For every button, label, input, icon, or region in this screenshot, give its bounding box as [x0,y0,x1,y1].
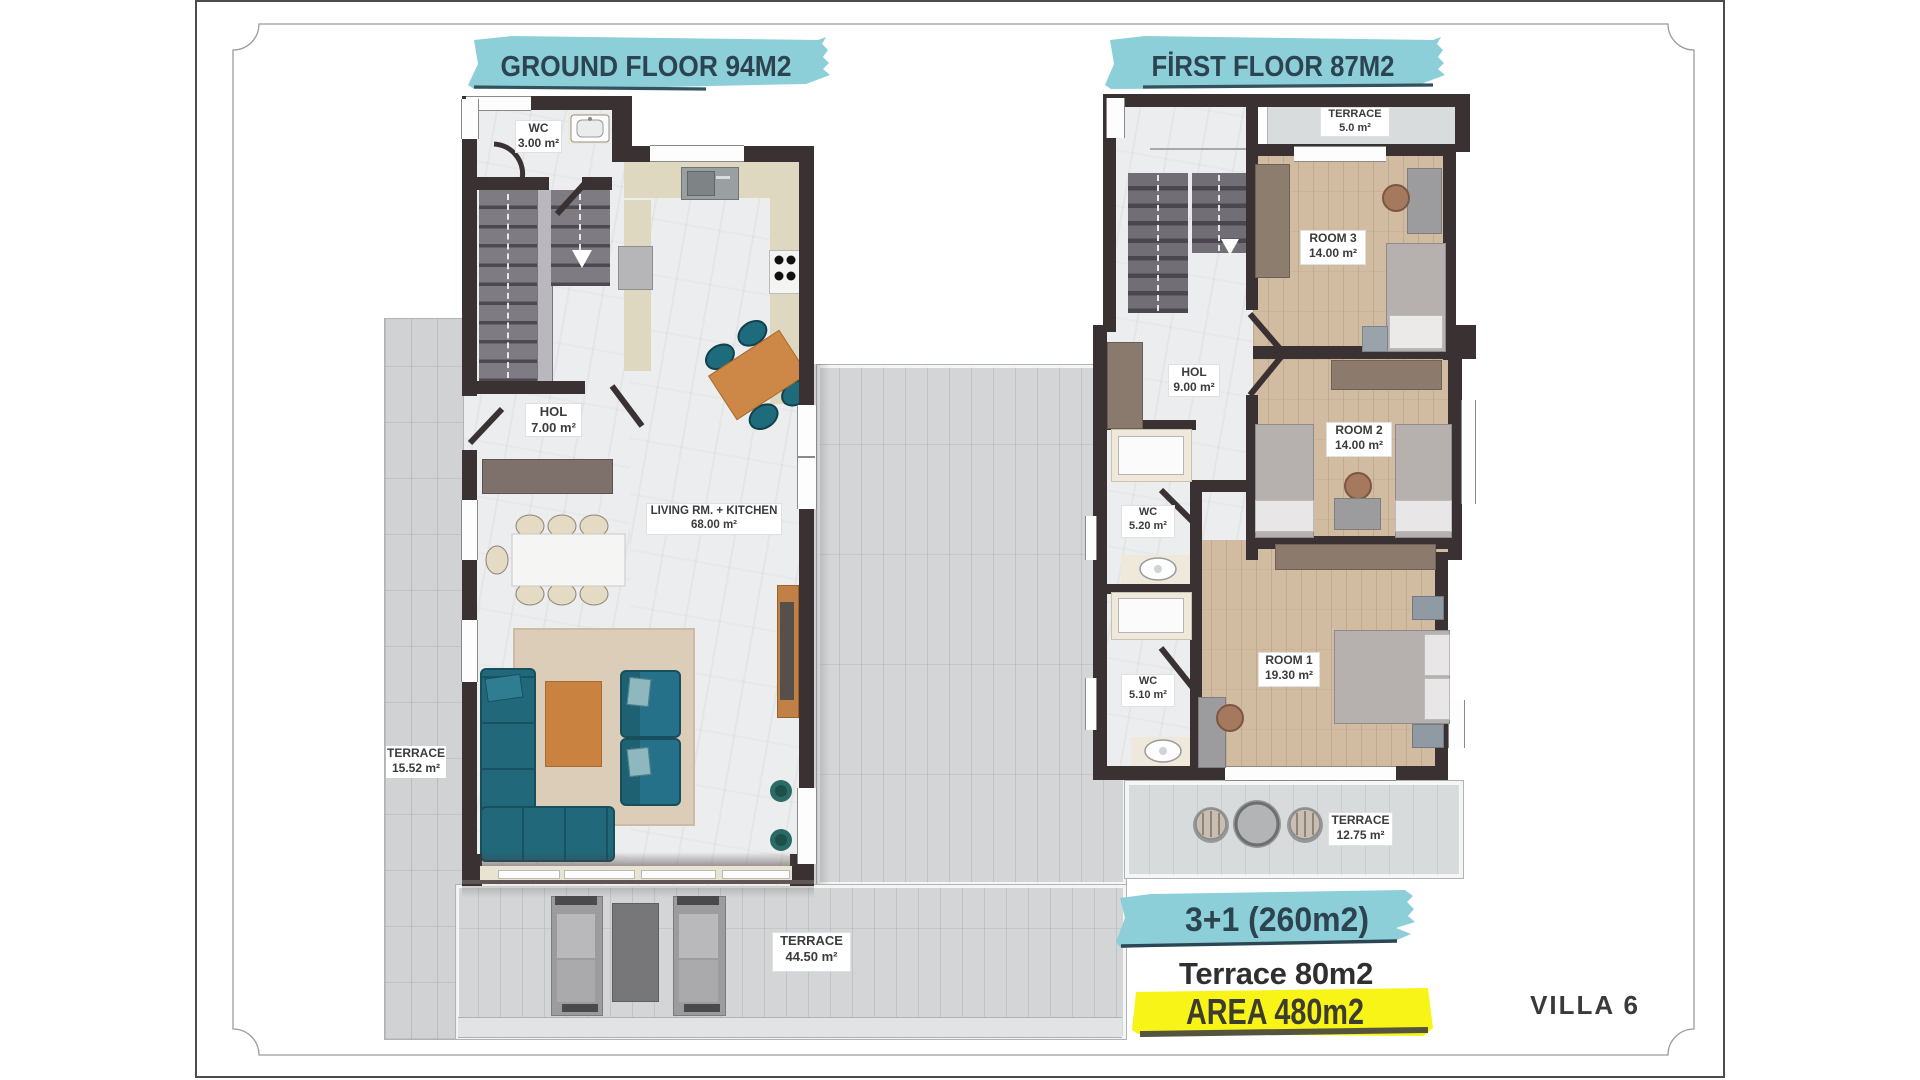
svg-text:AREA 480m2: AREA 480m2 [1186,991,1364,1032]
svg-text:3+1 (260m2): 3+1 (260m2) [1185,901,1369,939]
svg-text:FİRST FLOOR 87M2: FİRST FLOOR 87M2 [1152,51,1395,83]
svg-text:GROUND FLOOR 94M2: GROUND FLOOR 94M2 [501,51,792,83]
